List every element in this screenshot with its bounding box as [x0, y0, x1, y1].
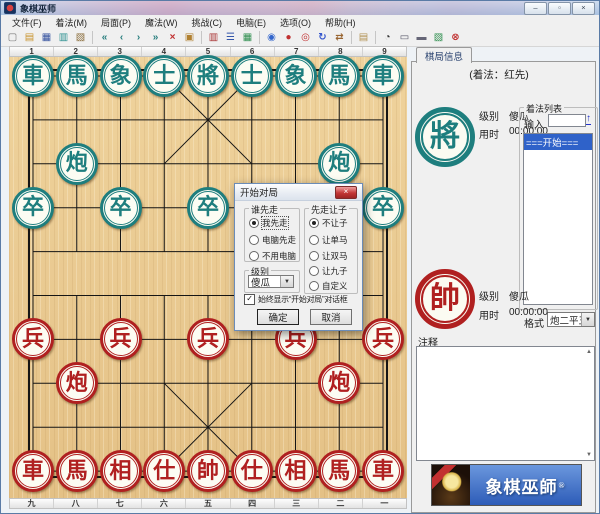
- piece-馬-black[interactable]: 馬: [56, 55, 98, 97]
- piece-char: 兵: [372, 328, 394, 351]
- piece-象-black[interactable]: 象: [275, 55, 317, 97]
- board-setup-icon[interactable]: ▦: [239, 30, 256, 45]
- toolbar-separator: [259, 31, 260, 44]
- comment-textarea[interactable]: ▲ ▼: [416, 346, 595, 461]
- always-show-checkbox-row[interactable]: ✓ 始终显示“开始对局”对话框: [244, 294, 347, 305]
- banner-logo-text: 象棋巫師®: [470, 465, 581, 505]
- chart-icon[interactable]: ▧: [430, 30, 447, 45]
- menu-item-7[interactable]: 选项(O): [273, 15, 318, 30]
- manual-icon[interactable]: ▤: [355, 30, 372, 45]
- who-first-option-2[interactable]: 电脑先走: [249, 234, 296, 246]
- radio-icon[interactable]: [309, 235, 319, 245]
- red-level-row: 级别 傻瓜: [479, 288, 529, 303]
- handicap-option-label: 让双马: [322, 250, 348, 262]
- radio-icon[interactable]: [309, 281, 319, 291]
- piece-帥-red[interactable]: 帥: [187, 450, 229, 492]
- file-label-bottom: 九: [10, 499, 54, 508]
- piece-char: 相: [109, 460, 131, 483]
- piece-char: 象: [284, 65, 306, 88]
- dialog-close-button[interactable]: ×: [335, 186, 357, 199]
- open-file-icon[interactable]: ▤: [21, 30, 38, 45]
- piece-卒-black[interactable]: 卒: [100, 187, 142, 229]
- maximize-button[interactable]: ▫: [548, 2, 571, 15]
- piece-char: 車: [372, 65, 394, 88]
- tab-game-info[interactable]: 棋局信息: [416, 47, 472, 63]
- review-icon[interactable]: ◎: [297, 30, 314, 45]
- file-label-bottom: 三: [275, 499, 319, 508]
- menu-item-1[interactable]: 文件(F): [5, 15, 49, 30]
- handicap-option-label: 让单马: [322, 234, 348, 246]
- piece-馬-red[interactable]: 馬: [56, 450, 98, 492]
- black-level-label: 级别: [479, 108, 509, 123]
- radio-icon[interactable]: [249, 251, 259, 261]
- black-general-badge: 將: [415, 107, 475, 167]
- piece-char: 炮: [328, 152, 350, 175]
- handicap-option-label: 自定义: [322, 280, 348, 292]
- move-list-group: 着法列表 输入 ↑ ===开始===: [519, 107, 598, 310]
- piece-char: 卒: [22, 196, 44, 219]
- menu-item-3[interactable]: 局面(P): [94, 15, 138, 30]
- radio-icon[interactable]: [309, 218, 319, 228]
- file-label-bottom: 六: [142, 499, 186, 508]
- piece-卒-black[interactable]: 卒: [362, 187, 404, 229]
- registered-mark: ®: [559, 481, 566, 490]
- piece-士-black[interactable]: 士: [143, 55, 185, 97]
- prev-move-icon[interactable]: ‹: [113, 30, 130, 45]
- move-list-icon[interactable]: ☰: [222, 30, 239, 45]
- piece-將-black[interactable]: 將: [187, 55, 229, 97]
- piece-char: 炮: [66, 372, 88, 395]
- app-icon: [4, 2, 16, 14]
- info-panel: 棋局信息 (着法：红先) 將 级别 傻瓜 用时 00:00:00 着法列表 输入…: [409, 46, 599, 514]
- banner-piece-art: [432, 465, 470, 505]
- piece-char: 卒: [109, 196, 131, 219]
- piece-char: 卒: [372, 196, 394, 219]
- window-title: 象棋巫师: [20, 2, 56, 15]
- move-input-label: 输入: [524, 116, 544, 131]
- radio-icon[interactable]: [309, 251, 319, 261]
- always-show-checkbox-label: 始终显示“开始对局”对话框: [258, 294, 347, 305]
- handicap-option-2[interactable]: 让单马: [309, 234, 348, 246]
- printer-icon[interactable]: ▬: [413, 30, 430, 45]
- piece-象-black[interactable]: 象: [100, 55, 142, 97]
- handicap-label: 先走让子: [309, 203, 349, 216]
- start-game-dialog: 开始对局 × 谁先走 我先走电脑先走不用电脑 先走让子 不让子让单马让双马让九子…: [234, 183, 363, 331]
- piece-char: 帥: [197, 460, 219, 483]
- move-list-item[interactable]: ===开始===: [524, 134, 592, 150]
- file-label-bottom: 八: [54, 499, 98, 508]
- piece-char: 炮: [66, 152, 88, 175]
- toolbar-separator: [375, 31, 376, 44]
- handicap-option-4[interactable]: 让九子: [309, 265, 348, 277]
- save-icon[interactable]: ▦: [38, 30, 55, 45]
- red-general-badge: 帥: [415, 269, 475, 329]
- piece-兵-red[interactable]: 兵: [100, 318, 142, 360]
- red-level-value: 傻瓜: [509, 288, 529, 303]
- file-label-bottom: 一: [363, 499, 406, 508]
- piece-style-icon[interactable]: ●: [280, 30, 297, 45]
- piece-char: 馬: [66, 460, 88, 483]
- menu-item-4[interactable]: 魔法(W): [138, 15, 185, 30]
- red-time-label: 用时: [479, 307, 509, 322]
- computer-icon[interactable]: ▭: [396, 30, 413, 45]
- toolbar-separator: [351, 31, 352, 44]
- window-controls: – ▫ ×: [524, 2, 596, 15]
- toolbar-separator: [92, 31, 93, 44]
- file-label-bottom: 五: [186, 499, 230, 508]
- rotate-board-icon[interactable]: ↻: [314, 30, 331, 45]
- who-first-option-3[interactable]: 不用电脑: [249, 250, 296, 262]
- piece-char: 兵: [284, 328, 306, 351]
- handicap-option-3[interactable]: 让双马: [309, 250, 348, 262]
- format-combo[interactable]: 炮二平五 ▼: [547, 312, 595, 327]
- menu-item-6[interactable]: 电脑(E): [229, 15, 273, 30]
- close-button[interactable]: ×: [572, 2, 595, 15]
- new-file-icon[interactable]: ▢: [4, 30, 21, 45]
- web-icon[interactable]: ◉: [263, 30, 280, 45]
- minimize-button[interactable]: –: [524, 2, 547, 15]
- piece-炮-red[interactable]: 炮: [56, 362, 98, 404]
- piece-炮-black[interactable]: 炮: [56, 143, 98, 185]
- menu-bar: 文件(F)着法(M)局面(P)魔法(W)挑战(C)电脑(E)选项(O)帮助(H): [1, 15, 599, 29]
- handicap-option-1[interactable]: 不让子: [309, 217, 348, 229]
- who-first-label: 谁先走: [249, 203, 280, 216]
- radio-icon[interactable]: [249, 218, 259, 228]
- piece-馬-black[interactable]: 馬: [318, 55, 360, 97]
- piece-士-black[interactable]: 士: [231, 55, 273, 97]
- piece-卒-black[interactable]: 卒: [187, 187, 229, 229]
- level-group: 级别 傻瓜 ▼: [244, 270, 300, 293]
- banner-brand-name: 象棋巫師: [486, 473, 558, 498]
- move-listbox[interactable]: ===开始===: [523, 133, 593, 305]
- piece-char: 車: [22, 460, 44, 483]
- piece-車-black[interactable]: 車: [12, 55, 54, 97]
- piece-char: 馬: [328, 460, 350, 483]
- piece-char: 士: [241, 65, 263, 88]
- piece-卒-black[interactable]: 卒: [12, 187, 54, 229]
- delete-move-icon[interactable]: ×: [164, 30, 181, 45]
- black-time-label: 用时: [479, 126, 509, 141]
- file-label-bottom: 七: [98, 499, 142, 508]
- toolbar: ▢▤▦▥▧«‹›»×▣▥☰▦◉●◎↻⇄▤◔▭▬▧⊗: [1, 29, 599, 47]
- piece-仕-red[interactable]: 仕: [231, 450, 273, 492]
- piece-char: 馬: [328, 65, 350, 88]
- piece-車-black[interactable]: 車: [362, 55, 404, 97]
- next-move-icon[interactable]: ›: [130, 30, 147, 45]
- piece-車-red[interactable]: 車: [12, 450, 54, 492]
- scroll-down-icon[interactable]: ▼: [586, 452, 592, 458]
- dialog-title: 开始对局: [240, 185, 278, 199]
- who-first-group: 谁先走 我先走电脑先走不用电脑: [244, 208, 300, 262]
- copy-position-icon[interactable]: ▥: [55, 30, 72, 45]
- red-level-label: 级别: [479, 288, 509, 303]
- piece-char: 士: [153, 65, 175, 88]
- ok-button[interactable]: 确定: [257, 309, 299, 325]
- handicap-option-label: 让九子: [322, 265, 348, 277]
- piece-char: 馬: [66, 65, 88, 88]
- opening-book-icon[interactable]: ▥: [205, 30, 222, 45]
- first-move-icon[interactable]: «: [96, 30, 113, 45]
- piece-char: 兵: [109, 328, 131, 351]
- format-value: 炮二平五: [550, 313, 581, 327]
- title-bar: 象棋巫师 – ▫ ×: [1, 1, 599, 15]
- piece-char: 相: [284, 460, 306, 483]
- who-first-option-1[interactable]: 我先走: [249, 217, 288, 229]
- piece-char: 仕: [153, 460, 175, 483]
- red-general-char: 帥: [430, 284, 460, 314]
- toolbar-separator: [201, 31, 202, 44]
- piece-相-red[interactable]: 相: [100, 450, 142, 492]
- checkbox-check-icon[interactable]: ✓: [244, 294, 255, 305]
- chevron-down-icon[interactable]: ▼: [581, 313, 594, 326]
- piece-char: 象: [109, 65, 131, 88]
- export-icon[interactable]: ▧: [72, 30, 89, 45]
- app-window: 象棋巫师 – ▫ × 文件(F)着法(M)局面(P)魔法(W)挑战(C)电脑(E…: [0, 0, 600, 514]
- radio-icon[interactable]: [249, 235, 259, 245]
- level-combo[interactable]: 傻瓜 ▼: [248, 275, 294, 288]
- stop-icon[interactable]: ⊗: [447, 30, 464, 45]
- who-first-option-label: 我先走: [262, 217, 288, 229]
- cancel-button[interactable]: 取消: [310, 309, 352, 325]
- handicap-option-5[interactable]: 自定义: [309, 280, 348, 292]
- who-first-option-label: 电脑先走: [262, 234, 296, 246]
- file-label-bottom: 二: [319, 499, 363, 508]
- black-general-char: 將: [430, 122, 460, 152]
- piece-車-red[interactable]: 車: [362, 450, 404, 492]
- menu-item-8[interactable]: 帮助(H): [318, 15, 363, 30]
- red-time-value: 00:00:00: [509, 307, 548, 322]
- chevron-down-icon[interactable]: ▼: [280, 276, 293, 287]
- handicap-option-label: 不让子: [322, 217, 348, 229]
- piece-char: 卒: [197, 196, 219, 219]
- enter-move-icon[interactable]: ↑: [586, 114, 591, 125]
- dialog-title-bar[interactable]: 开始对局 ×: [235, 184, 362, 201]
- handicap-group: 先走让子 不让子让单马让双马让九子自定义: [304, 208, 358, 294]
- file-label-bottom: 四: [231, 499, 275, 508]
- piece-char: 車: [372, 460, 394, 483]
- piece-相-red[interactable]: 相: [275, 450, 317, 492]
- piece-char: 車: [22, 65, 44, 88]
- piece-char: 兵: [197, 328, 219, 351]
- piece-char: 仕: [241, 460, 263, 483]
- menu-item-5[interactable]: 挑战(C): [185, 15, 230, 30]
- last-move-icon[interactable]: »: [147, 30, 164, 45]
- timer-icon[interactable]: ◔: [379, 30, 396, 45]
- radio-icon[interactable]: [309, 266, 319, 276]
- piece-char: 兵: [22, 328, 44, 351]
- level-value: 傻瓜: [251, 275, 280, 289]
- red-time-row: 用时 00:00:00: [479, 307, 548, 322]
- flip-board-icon[interactable]: ⇄: [331, 30, 348, 45]
- piece-char: 炮: [328, 372, 350, 395]
- paste-icon[interactable]: ▣: [181, 30, 198, 45]
- menu-item-2[interactable]: 着法(M): [49, 15, 95, 30]
- who-first-option-label: 不用电脑: [262, 250, 296, 262]
- bottom-file-labels: 九八七六五四三二一: [9, 498, 407, 509]
- piece-char: 將: [197, 65, 219, 88]
- move-input[interactable]: [548, 114, 586, 127]
- move-turn-heading: (着法：红先): [409, 67, 589, 82]
- brand-banner[interactable]: 象棋巫師®: [431, 464, 582, 506]
- scroll-up-icon[interactable]: ▲: [586, 349, 592, 355]
- piece-炮-black[interactable]: 炮: [318, 143, 360, 185]
